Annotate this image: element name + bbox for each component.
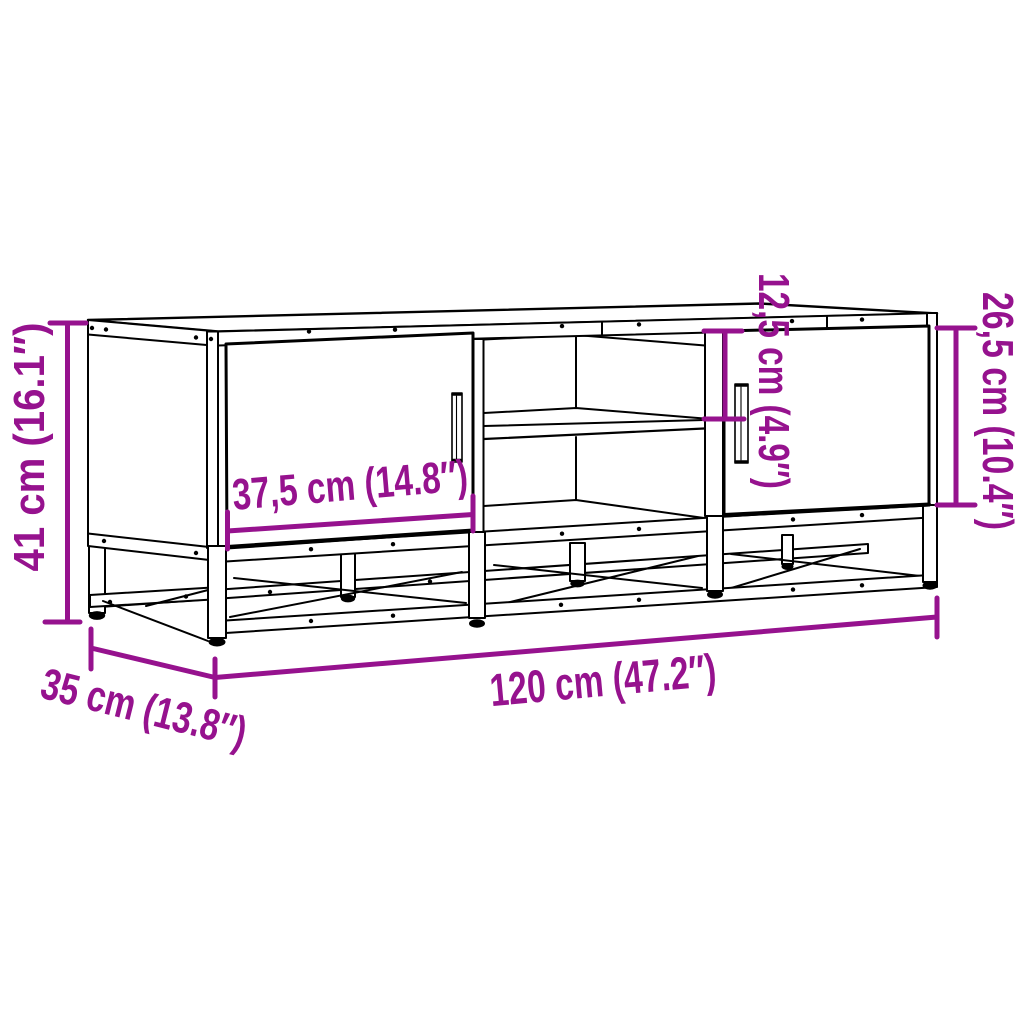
svg-text:35 cm (13.8″): 35 cm (13.8″) — [36, 659, 252, 757]
svg-text:12,5 cm (4.9″): 12,5 cm (4.9″) — [749, 273, 798, 489]
svg-text:120 cm (47.2″): 120 cm (47.2″) — [488, 644, 719, 716]
svg-text:41 cm (16.1″): 41 cm (16.1″) — [5, 323, 54, 572]
svg-text:26,5 cm (10.4″): 26,5 cm (10.4″) — [973, 292, 1022, 530]
